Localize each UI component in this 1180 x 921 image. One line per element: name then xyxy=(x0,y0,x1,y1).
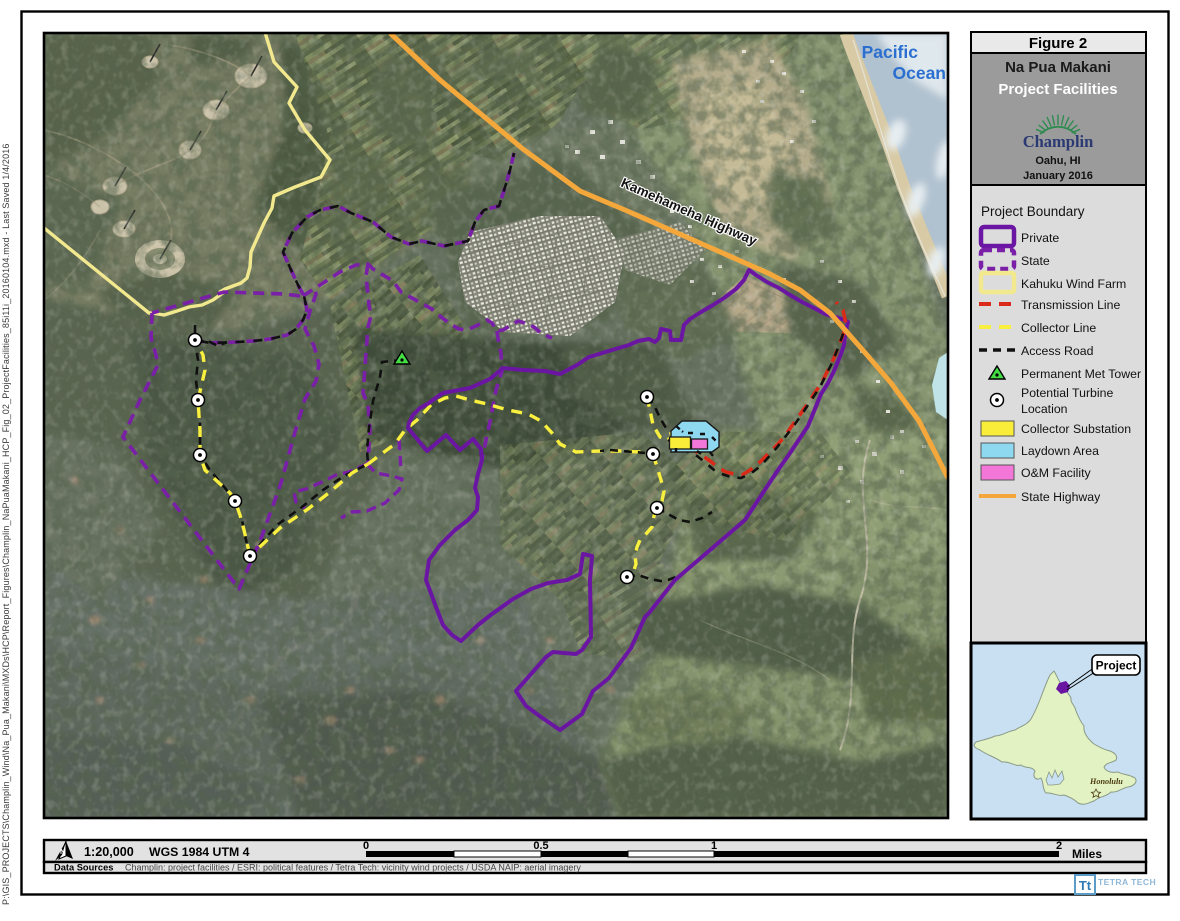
svg-text:Data Sources: Data Sources xyxy=(54,863,113,873)
svg-text:1: 1 xyxy=(711,840,717,852)
svg-text:Access Road: Access Road xyxy=(1021,344,1094,358)
svg-text:Champlin: project facilities /: Champlin: project facilities / ESRI: pol… xyxy=(125,863,581,873)
svg-text:Project Boundary: Project Boundary xyxy=(981,204,1085,219)
svg-text:Figure 2: Figure 2 xyxy=(1029,35,1087,52)
svg-text:1:20,000: 1:20,000 xyxy=(84,845,134,859)
svg-text:State: State xyxy=(1021,254,1050,268)
svg-text:January 2016: January 2016 xyxy=(1023,170,1093,182)
svg-text:WGS 1984 UTM 4: WGS 1984 UTM 4 xyxy=(149,845,250,859)
svg-text:State Highway: State Highway xyxy=(1021,490,1101,504)
svg-text:Project: Project xyxy=(1096,659,1137,673)
svg-text:Kahuku Wind Farm: Kahuku Wind Farm xyxy=(1021,277,1126,291)
svg-text:O&M Facility: O&M Facility xyxy=(1021,466,1092,480)
svg-text:Collector Substation: Collector Substation xyxy=(1021,422,1131,436)
svg-text:0: 0 xyxy=(363,840,369,852)
svg-text:TETRA TECH: TETRA TECH xyxy=(1098,877,1156,887)
svg-text:Location: Location xyxy=(1021,402,1068,416)
svg-text:Na Pua Makani: Na Pua Makani xyxy=(1005,59,1111,76)
svg-text:Miles: Miles xyxy=(1072,847,1102,861)
svg-text:Potential Turbine: Potential Turbine xyxy=(1021,386,1113,400)
svg-text:Honolulu: Honolulu xyxy=(1089,777,1123,786)
svg-text:Oahu, HI: Oahu, HI xyxy=(1035,155,1080,167)
svg-text:N: N xyxy=(60,847,65,856)
svg-text:Collector Line: Collector Line xyxy=(1021,321,1096,335)
svg-text:Project Facilities: Project Facilities xyxy=(998,81,1117,98)
svg-text:Permanent Met Tower: Permanent Met Tower xyxy=(1021,367,1141,381)
svg-text:Ocean: Ocean xyxy=(893,63,947,83)
svg-text:Tt: Tt xyxy=(1079,878,1092,893)
svg-text:Pacific: Pacific xyxy=(862,42,919,62)
svg-text:Champlin: Champlin xyxy=(1023,132,1094,151)
svg-text:Private: Private xyxy=(1021,231,1059,245)
svg-text:0.5: 0.5 xyxy=(533,840,548,852)
svg-text:P:\GIS_PROJECTS\Champlin_Wind\: P:\GIS_PROJECTS\Champlin_Wind\Na_Pua_Mak… xyxy=(1,143,11,905)
svg-text:Transmission Line: Transmission Line xyxy=(1021,298,1120,312)
svg-text:2: 2 xyxy=(1056,840,1062,852)
svg-text:Laydown Area: Laydown Area xyxy=(1021,444,1099,458)
